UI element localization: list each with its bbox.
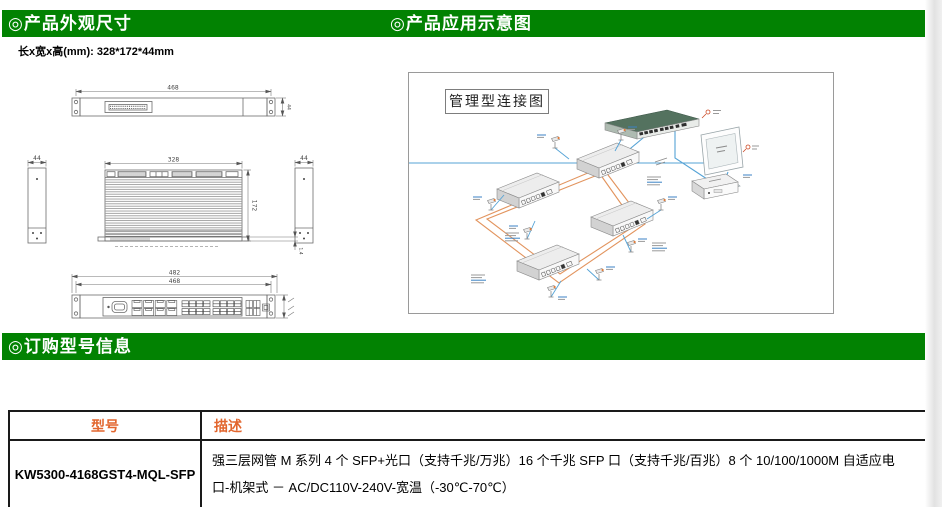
dim-base-thickness: 1.4: [298, 247, 304, 254]
sfp-ports: [182, 301, 241, 315]
datasheet-page: ◎产品外观尺寸 ◎产品应用示意图 长x宽x高(mm): 328*172*44mm: [0, 0, 942, 507]
rj45-ports: [132, 301, 177, 316]
dim-front-inner: 468: [169, 278, 181, 285]
column-header-model: 型号: [9, 411, 201, 440]
core-switch: [605, 110, 699, 139]
dim-rear-width: 468: [167, 85, 179, 92]
section-title-ordering: ◎订购型号信息: [8, 333, 132, 360]
ring-switch-a: [577, 143, 639, 178]
column-header-description: 描述: [201, 411, 927, 440]
decoder-box: [692, 174, 738, 199]
section-title-application: ◎产品应用示意图: [390, 10, 532, 37]
rear-view: 468 44: [72, 85, 292, 117]
ring-switch-b: [497, 173, 559, 208]
ring-switch-d: [517, 245, 579, 280]
device-label-c: [652, 243, 667, 251]
uplink-modules: [246, 301, 270, 316]
size-label: 长x宽x高(mm): 328*172*44mm: [18, 43, 174, 59]
description-line-1: 强三层网管 M 系列 4 个 SFP+光口（支持千兆/万兆）16 个千兆 SFP…: [212, 447, 916, 474]
front-view: 482 468: [72, 270, 294, 319]
dim-side-left: 44: [33, 155, 41, 162]
description-line-2: 口-机架式 － AC/DC110V-240V-宽温（-30℃-70℃）: [212, 474, 916, 501]
power-icon-switch: [702, 110, 721, 118]
section-bar-ordering: ◎订购型号信息: [2, 333, 925, 360]
dim-top-width: 328: [168, 157, 180, 164]
device-label-d: [471, 275, 486, 283]
model-number: KW5300-4168GST4-MQL-SFP: [9, 440, 201, 507]
top-view: 44 44 328 172 1.4: [28, 155, 313, 255]
model-description: 强三层网管 M 系列 4 个 SFP+光口（支持千兆/万兆）16 个千兆 SFP…: [201, 440, 927, 507]
power-icon-monitor: [743, 145, 759, 152]
network-links: [409, 130, 728, 180]
dim-front-outer: 482: [169, 270, 181, 277]
section-bar-top: ◎产品外观尺寸 ◎产品应用示意图: [2, 10, 925, 37]
order-table-header-row: 型号 描述: [9, 411, 927, 440]
diagram-title: 管理型连接图: [445, 89, 549, 114]
device-label-a: [647, 177, 662, 185]
order-table: 型号 描述 KW5300-4168GST4-MQL-SFP 强三层网管 M 系列…: [8, 410, 928, 507]
dim-side-right: 44: [300, 155, 308, 162]
ring-switch-c: [591, 201, 653, 236]
decoder-label: [743, 175, 752, 177]
application-diagram: 管理型连接图: [408, 72, 834, 314]
section-title-dimensions: ◎产品外观尺寸: [8, 10, 132, 37]
dimension-drawing: 468 44: [10, 78, 340, 330]
order-table-row: KW5300-4168GST4-MQL-SFP 强三层网管 M 系列 4 个 S…: [9, 440, 927, 507]
dim-top-depth: 172: [251, 200, 258, 212]
page-edge-shadow: [925, 0, 942, 507]
dim-rear-height: 44: [286, 104, 292, 110]
link-speed-label: [655, 158, 667, 165]
